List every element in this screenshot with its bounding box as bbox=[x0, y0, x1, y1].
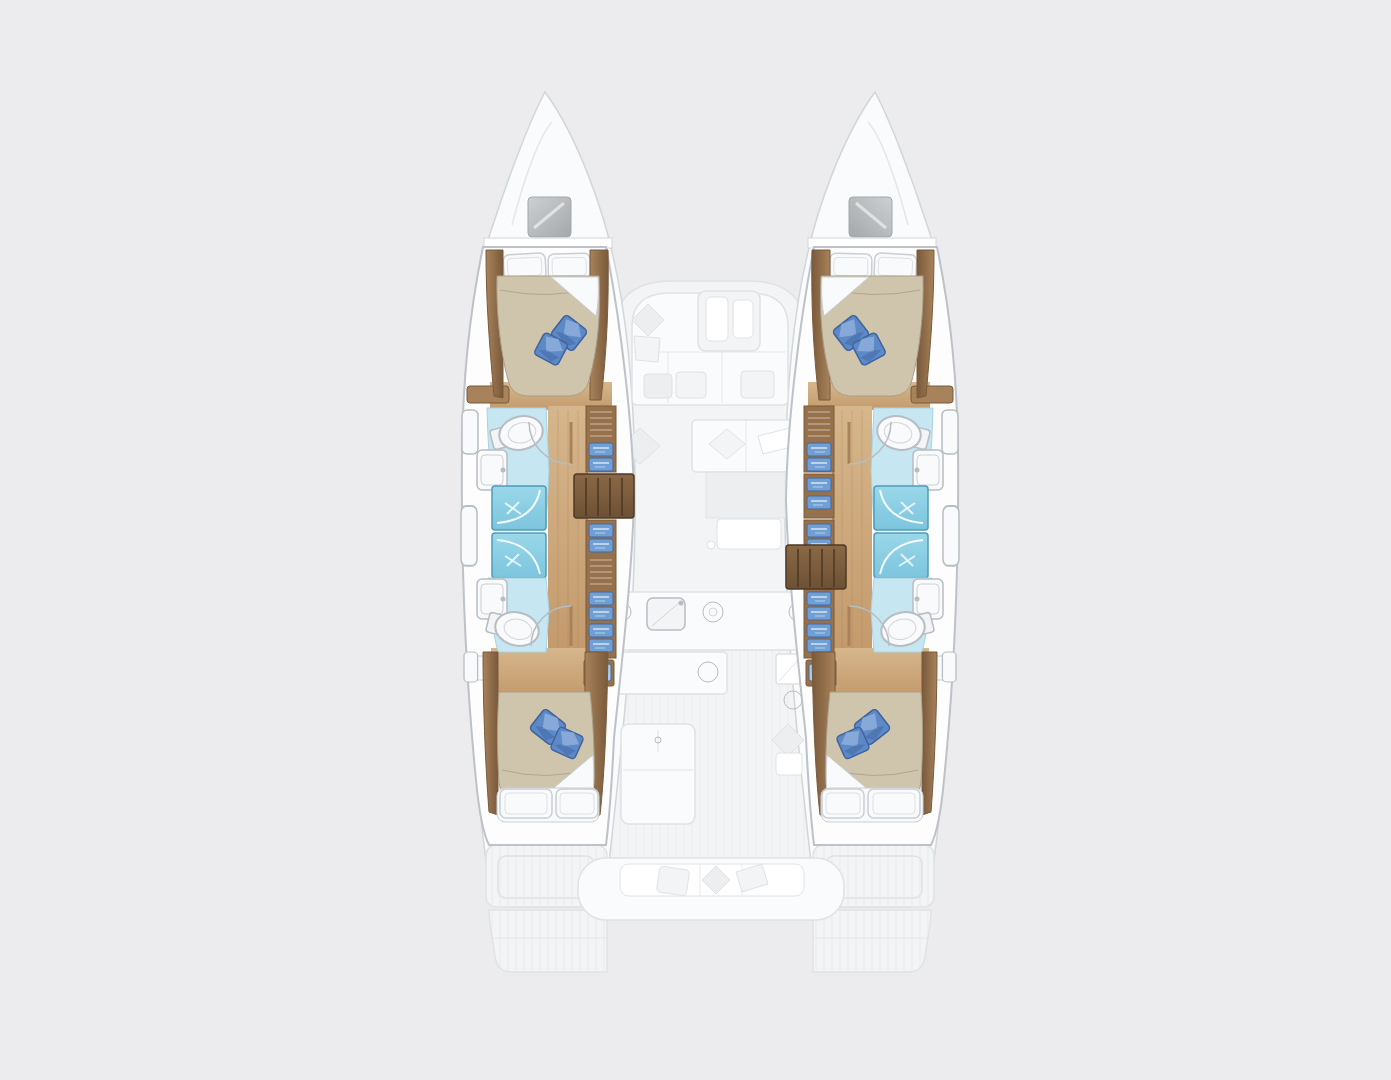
hull-interior-port bbox=[461, 247, 634, 845]
table-tray bbox=[733, 300, 753, 338]
stool bbox=[707, 541, 715, 549]
seat-cushion bbox=[644, 374, 672, 398]
blue-drawer bbox=[589, 539, 613, 552]
blue-drawer bbox=[589, 624, 613, 637]
blue-drawer bbox=[589, 458, 613, 471]
chart-table bbox=[706, 472, 796, 518]
blue-drawer bbox=[807, 496, 831, 509]
starboard-wardrobe-patch bbox=[804, 474, 834, 518]
seat-cushion bbox=[741, 371, 774, 398]
stairs-starboard bbox=[786, 545, 846, 589]
catamaran-floorplan-stage bbox=[0, 0, 1391, 1080]
blue-drawer bbox=[589, 524, 613, 537]
aft-cabin-entry-sole bbox=[491, 648, 595, 696]
platform-plank-texture bbox=[489, 910, 607, 972]
blue-drawer bbox=[589, 443, 613, 456]
inboard-wardrobes bbox=[586, 406, 616, 658]
catamaran-floorplan bbox=[0, 0, 1391, 1080]
chart-seat bbox=[717, 519, 781, 549]
table-tray bbox=[706, 297, 728, 341]
hull-window bbox=[464, 652, 478, 682]
blue-drawer bbox=[589, 639, 613, 652]
blue-drawer bbox=[589, 592, 613, 605]
blue-drawer bbox=[589, 607, 613, 620]
scatter-cushion bbox=[634, 336, 660, 362]
seat-cushion bbox=[676, 372, 706, 398]
helm-cushion bbox=[776, 753, 802, 775]
bench-cushion bbox=[656, 866, 689, 896]
island-sink bbox=[698, 662, 718, 682]
washbasin bbox=[477, 450, 507, 490]
faucet-dot bbox=[679, 601, 684, 606]
hull-window bbox=[462, 410, 478, 454]
blue-drawer bbox=[807, 478, 831, 491]
burner bbox=[703, 602, 723, 622]
hull-window bbox=[461, 506, 477, 566]
stairs-port bbox=[574, 474, 634, 518]
